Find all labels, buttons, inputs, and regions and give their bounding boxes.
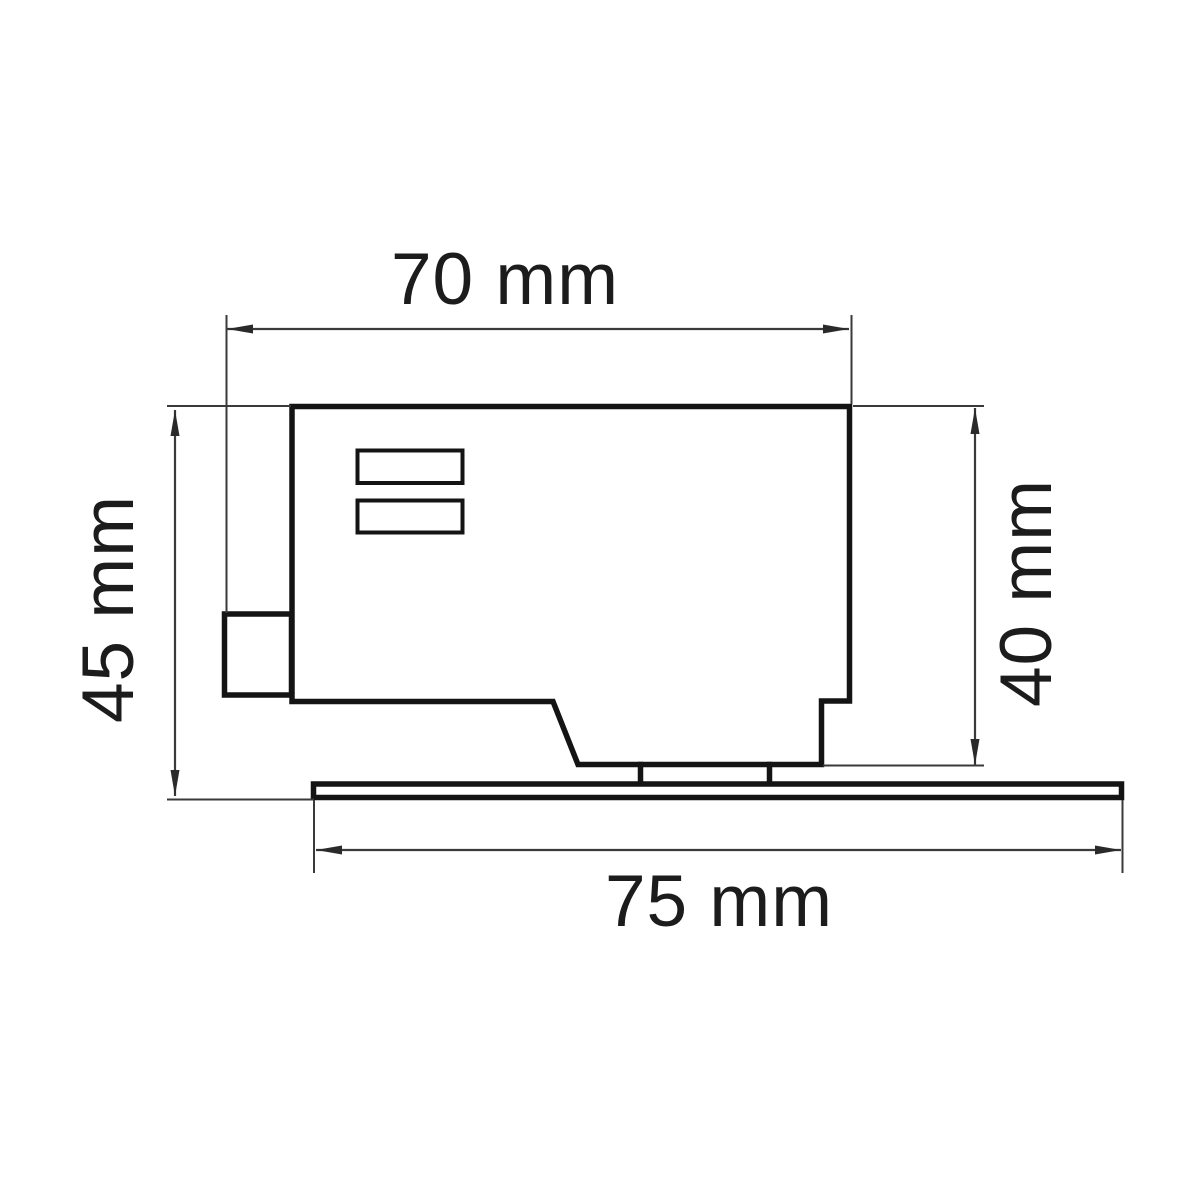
dimension-left-height: 45 mm xyxy=(68,406,314,800)
terminal-slot-2 xyxy=(358,501,463,533)
dimension-bottom-width: 75 mm xyxy=(314,800,1123,942)
mounting-plate xyxy=(314,784,1122,798)
dimension-label-bottom: 75 mm xyxy=(605,861,833,942)
arrowhead-left xyxy=(227,325,253,334)
arrowhead-up xyxy=(171,410,180,436)
arrowhead-down xyxy=(971,739,980,765)
terminal-slot-1 xyxy=(358,451,463,484)
arrowhead-down xyxy=(171,770,180,796)
arrowhead-up xyxy=(971,408,980,434)
arrowhead-right xyxy=(1095,846,1121,855)
dimension-label-left: 45 mm xyxy=(68,495,149,723)
connector-notch xyxy=(225,614,292,695)
dimension-top-width: 70 mm xyxy=(227,239,852,613)
dimension-right-height: 40 mm xyxy=(823,406,1067,766)
dimension-label-right: 40 mm xyxy=(986,479,1067,707)
technical-drawing-svg: 70 mm 45 mm 40 mm 75 mm xyxy=(0,0,1200,1200)
drawing-canvas: 70 mm 45 mm 40 mm 75 mm xyxy=(0,0,1200,1200)
arrowhead-right xyxy=(823,325,849,334)
dimension-label-top: 70 mm xyxy=(391,239,619,320)
arrowhead-left xyxy=(316,846,342,855)
